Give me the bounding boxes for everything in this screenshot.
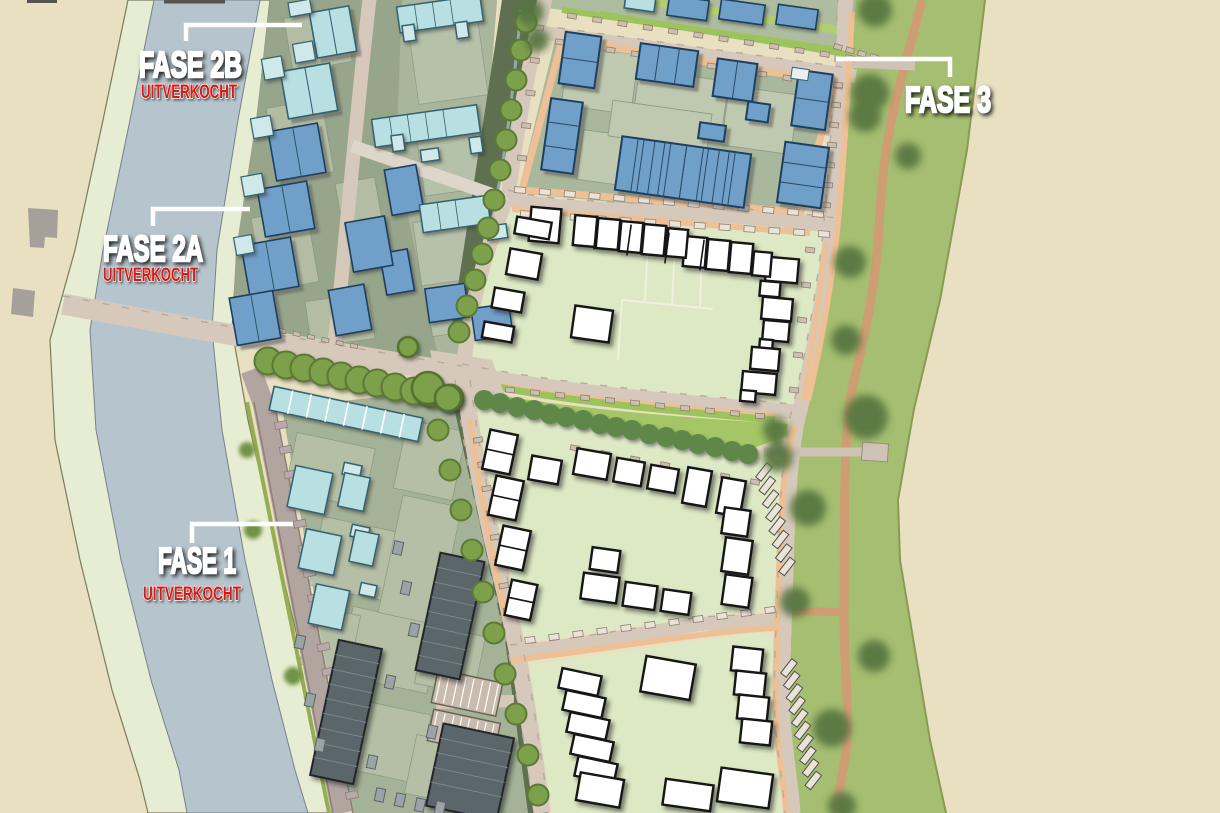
- svg-text:FASE 3: FASE 3: [905, 79, 991, 120]
- svg-text:UITVERKOCHT: UITVERKOCHT: [143, 584, 241, 605]
- svg-text:UITVERKOCHT: UITVERKOCHT: [103, 265, 198, 286]
- svg-text:FASE 2A: FASE 2A: [103, 228, 203, 269]
- svg-text:FASE 1: FASE 1: [158, 540, 236, 581]
- svg-text:UITVERKOCHT: UITVERKOCHT: [141, 82, 237, 103]
- svg-text:FASE 2B: FASE 2B: [139, 44, 242, 85]
